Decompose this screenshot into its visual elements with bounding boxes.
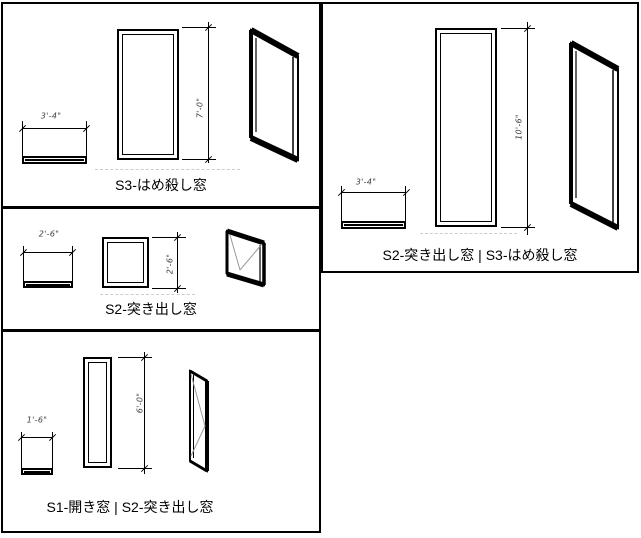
extension-line	[182, 27, 216, 28]
window-elevation	[83, 357, 112, 468]
legend-sheet: 3'-4" 7'-0" S3-はめ殺し窓 2'-6"	[0, 0, 641, 538]
dimension-line	[23, 252, 73, 253]
extension-line	[118, 468, 152, 469]
extension-line	[152, 288, 186, 289]
height-dimension-text: 7'-0"	[196, 98, 205, 118]
sill-reference-line	[95, 169, 240, 170]
legend-panel-awning-fixed-window: 3'-4" 10'-6" S2-突き出し窓 | S3-はめ殺し窓	[321, 2, 639, 273]
window-3d-view	[568, 38, 622, 232]
window-elevation	[117, 29, 179, 160]
extension-line	[118, 357, 152, 358]
extension-line	[501, 28, 535, 29]
dimension-line	[341, 192, 406, 193]
legend-panel-fixed-window: 3'-4" 7'-0" S3-はめ殺し窓	[1, 2, 321, 208]
window-type-label: S1-開き窓 | S2-突き出し窓	[3, 497, 257, 517]
window-3d-view	[224, 227, 268, 289]
extension-line	[501, 227, 535, 228]
window-elevation	[102, 237, 149, 288]
width-dimension-text: 2'-6"	[39, 230, 59, 239]
dimension-line	[177, 232, 178, 293]
height-dimension-text: 2'-6"	[166, 254, 175, 274]
height-dimension-text: 6'-0"	[136, 393, 145, 413]
window-type-label: S2-突き出し窓	[3, 299, 299, 319]
width-dimension-text: 3'-4"	[356, 178, 376, 187]
width-dimension-text: 3'-4"	[41, 112, 61, 121]
window-3d-view	[248, 26, 302, 164]
dimension-line	[21, 437, 53, 438]
dimension-line	[22, 128, 87, 129]
width-dimension-text: 1'-6"	[27, 416, 47, 425]
window-type-label: S2-突き出し窓 | S3-はめ殺し窓	[323, 245, 637, 265]
window-3d-view	[188, 368, 210, 474]
extension-line	[152, 237, 186, 238]
window-type-label: S3-はめ殺し窓	[3, 175, 319, 195]
sill-reference-line	[420, 233, 517, 234]
window-plan-symbol	[341, 221, 406, 229]
legend-panel-casement-awning-window: 1'-6" 6'-0" S1-開き窓 | S2-突き出し窓	[1, 330, 321, 533]
window-plan-symbol	[22, 156, 87, 164]
window-plan-symbol	[21, 468, 53, 475]
window-plan-symbol	[23, 281, 73, 288]
window-elevation	[435, 28, 497, 227]
extension-line	[182, 159, 216, 160]
legend-panel-awning-window: 2'-6" 2'-6" S2-突き出し窓	[1, 207, 321, 331]
dimension-line	[208, 22, 209, 163]
height-dimension-text: 10'-6"	[515, 114, 524, 140]
dimension-line	[527, 22, 528, 235]
sill-reference-line	[100, 294, 195, 295]
